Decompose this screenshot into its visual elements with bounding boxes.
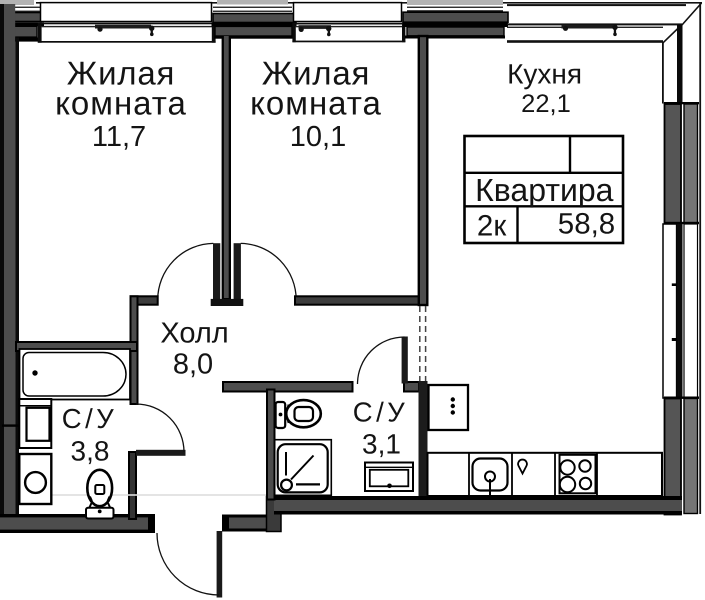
svg-text:10,1: 10,1 xyxy=(290,121,346,153)
svg-text:2к: 2к xyxy=(477,210,507,243)
svg-text:комната: комната xyxy=(55,85,187,122)
svg-text:Кухня: Кухня xyxy=(507,59,582,90)
svg-text:8,0: 8,0 xyxy=(173,349,213,381)
svg-text:Квартира: Квартира xyxy=(475,172,614,208)
svg-text:22,1: 22,1 xyxy=(521,90,571,118)
svg-text:Холл: Холл xyxy=(160,318,228,350)
svg-text:11,7: 11,7 xyxy=(92,121,146,153)
svg-text:3,8: 3,8 xyxy=(71,436,110,467)
svg-text:С/У: С/У xyxy=(62,403,117,434)
svg-text:С/У: С/У xyxy=(353,397,408,428)
svg-text:58,8: 58,8 xyxy=(558,208,615,241)
svg-text:3,1: 3,1 xyxy=(362,429,401,460)
svg-text:комната: комната xyxy=(250,85,382,122)
